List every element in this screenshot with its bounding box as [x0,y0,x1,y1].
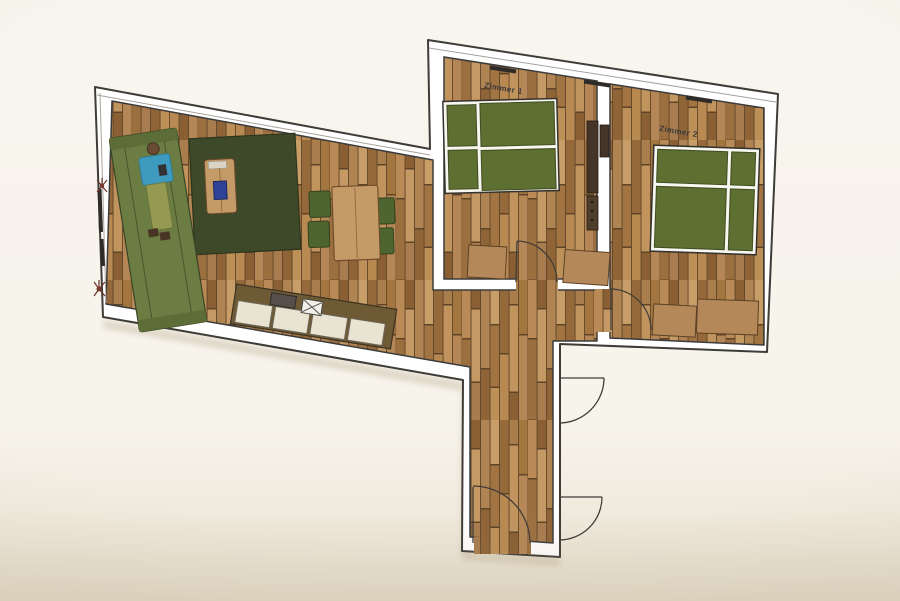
bed1-duvet [481,149,556,191]
dresser [563,250,610,286]
dining-chair [308,221,330,248]
rug-group [189,133,301,254]
window-left-1 [100,189,102,232]
bed1-duvet [480,102,555,147]
bedroom2-benches [652,299,758,337]
bench [696,299,758,335]
person-shoe-left [148,228,159,237]
tray [208,161,226,169]
bed2-duvet [657,149,728,184]
dresser [467,245,507,279]
bed1-pillow [448,150,478,190]
floor-plan-image: Zimmer 1 Zimmer 2 [0,0,900,601]
bed-zimmer1 [443,98,559,193]
window-left-2 [102,239,104,266]
dining-chair [309,191,331,218]
bedroom1-doorway [516,277,558,292]
person-phone [158,164,168,176]
cabinet-door [347,318,385,345]
bedroom2-doorway [595,289,612,332]
person-shoe-right [159,231,170,240]
cabinet-door [310,312,348,339]
floorplan-canvas: Zimmer 1 Zimmer 2 [0,0,900,601]
bench [652,304,697,337]
bed-zimmer2 [650,145,760,255]
corridor-door-1 [559,378,604,423]
cabinet-door [235,301,273,328]
blue-book [213,181,227,200]
bed2-duvet [654,186,726,249]
person-shirt [139,153,174,186]
corridor-door-2 [559,497,602,540]
bed2-pillow [728,189,754,251]
bed1-pillow [447,105,477,147]
bed2-pillow [731,152,756,186]
bed2-mattress [654,149,755,250]
wardrobe [600,125,609,157]
entrance-doorway [474,537,531,554]
wardrobe [587,121,598,193]
